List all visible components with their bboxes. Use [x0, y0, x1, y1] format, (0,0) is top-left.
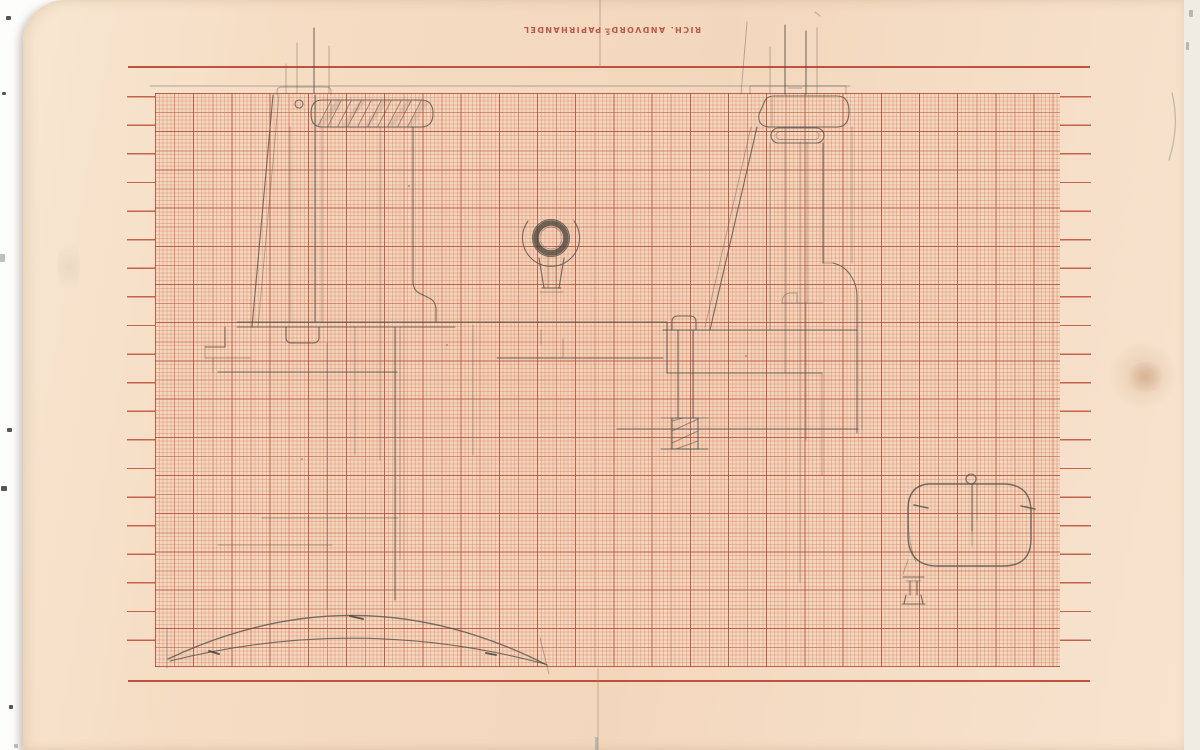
rivet-pin-part	[902, 577, 925, 604]
scan-speck	[0, 254, 5, 262]
scan-speck	[14, 744, 18, 748]
base-arc	[167, 615, 549, 674]
stray-marks	[301, 12, 1175, 460]
scan-speck	[1, 486, 7, 491]
right-bracket-part	[497, 22, 862, 583]
scan-speck	[1186, 42, 1189, 50]
scan-speck	[6, 16, 11, 20]
left-bracket-part	[150, 28, 850, 610]
scan-speck	[7, 428, 12, 432]
rounded-plate-part	[903, 474, 1035, 574]
scanned-drawing-page: { "stamp": { "prefix": "RICH. ANDVORD", …	[0, 0, 1200, 750]
pencil-drawing	[0, 0, 1200, 750]
center-boss-part	[522, 220, 579, 293]
scan-speck	[1189, 10, 1193, 17]
scan-speck	[2, 92, 6, 95]
scan-speck	[9, 705, 13, 709]
